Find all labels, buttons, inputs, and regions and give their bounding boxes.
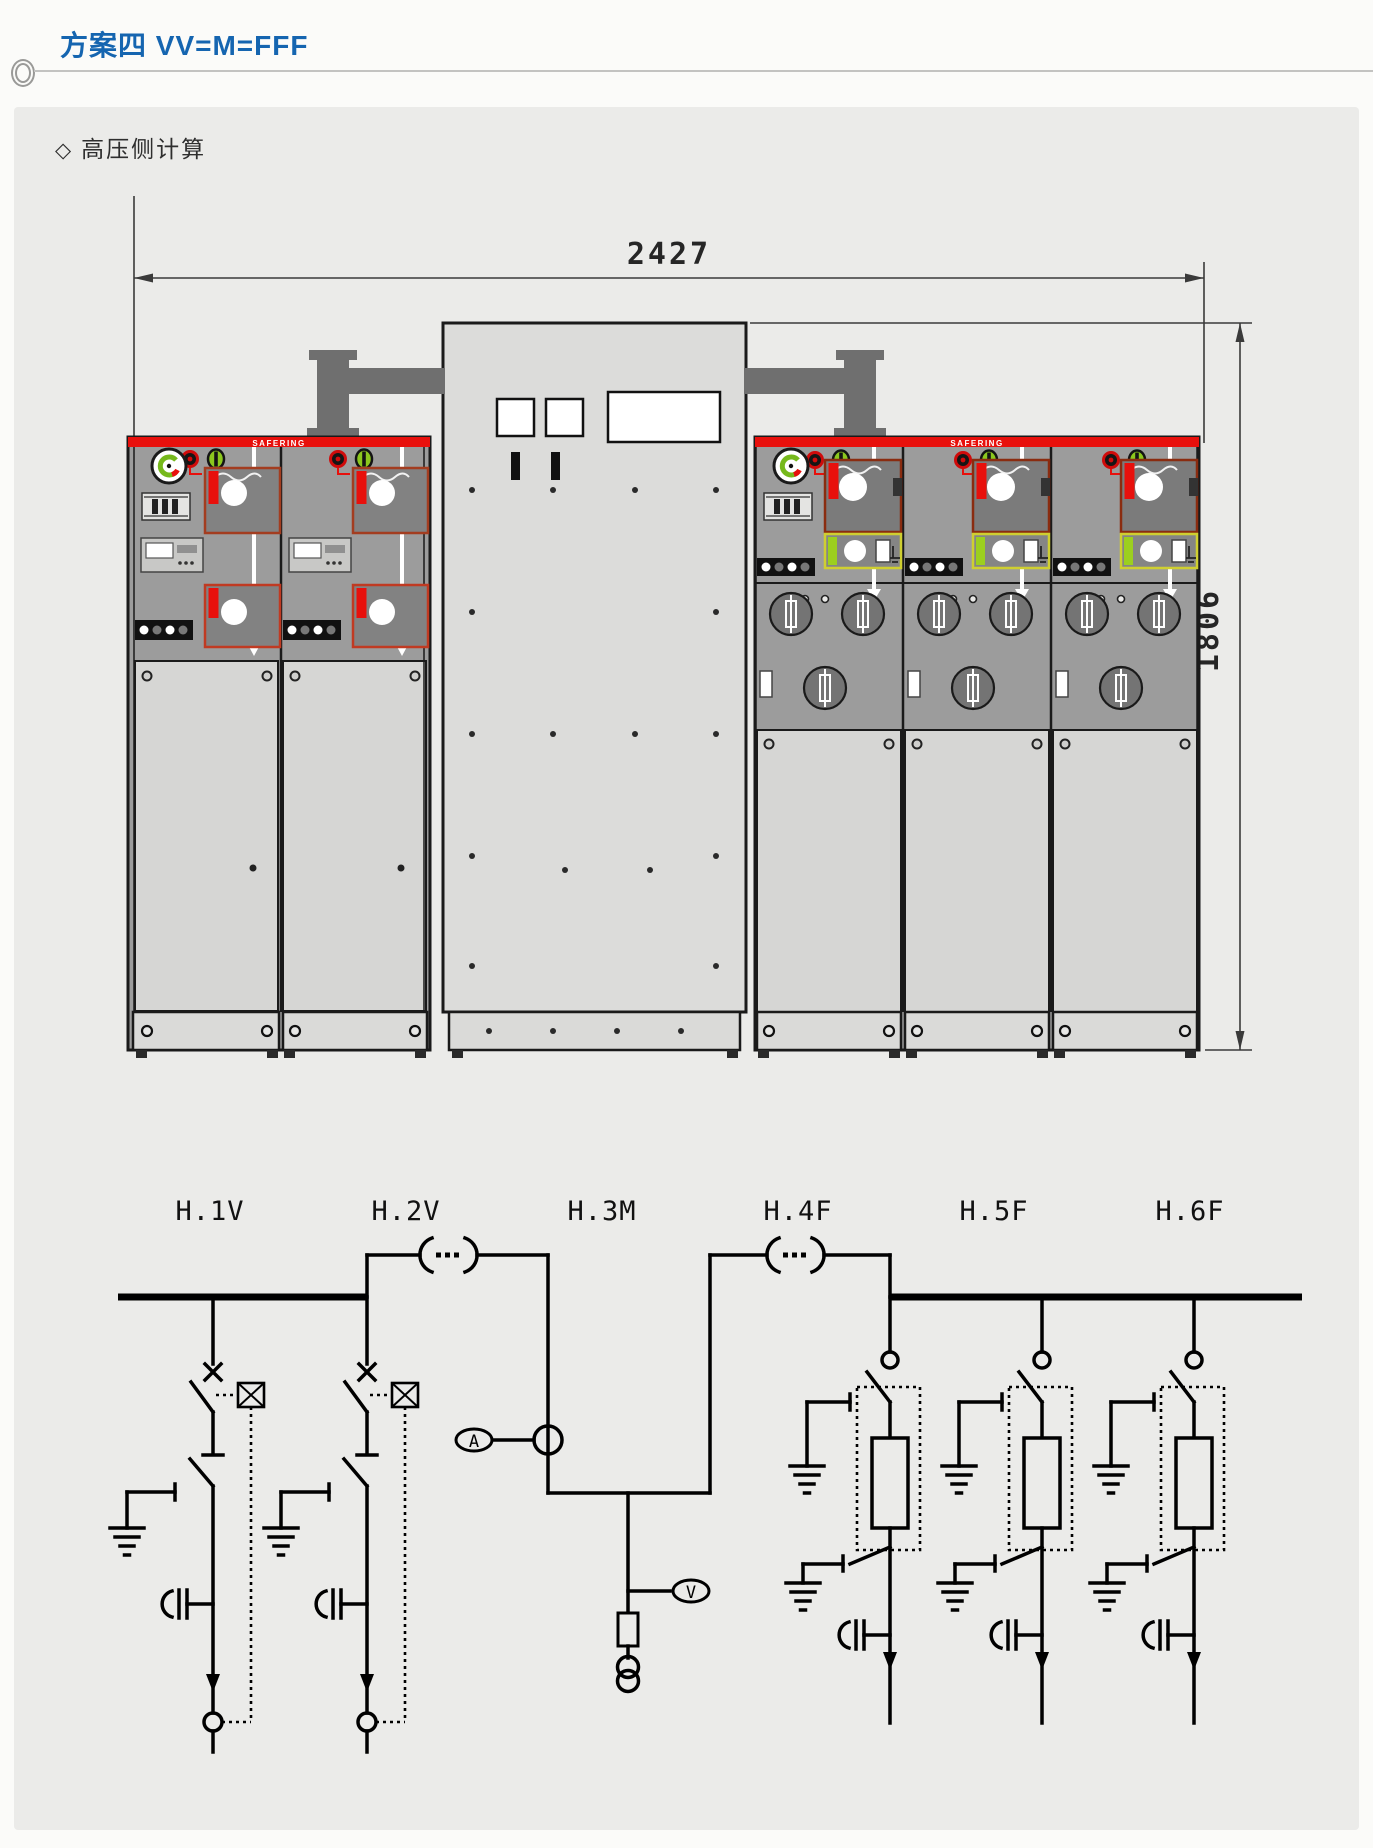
feeder-label-h3m: H.3M xyxy=(567,1196,636,1227)
feeder-label-h2v: H.2V xyxy=(371,1196,440,1227)
feeder-label-h4f: H.4F xyxy=(763,1196,832,1227)
feeder-circuit-h1v xyxy=(110,1297,264,1752)
single-line-diagram: H.1V H.2V H.3M H.4F H.5F H.6F A xyxy=(110,1196,1302,1752)
feeder-circuit-h2v xyxy=(264,1297,418,1752)
metering-cabinet xyxy=(443,323,746,1058)
vt-fuse-icon xyxy=(618,1613,638,1646)
brand-label-right: SAFERING xyxy=(950,439,1003,448)
document-page: 方案四 VV=M=FFF ◇高压侧计算 xyxy=(0,0,1373,1848)
technical-drawing: 2427 1806 xyxy=(0,0,1373,1848)
feeder-label-h6f: H.6F xyxy=(1155,1196,1224,1227)
busbar-duct-left xyxy=(307,350,445,438)
feeder-circuit-h6f xyxy=(1090,1297,1224,1723)
feeder-circuit-h5f xyxy=(938,1297,1072,1723)
busbar-duct-right xyxy=(744,350,886,438)
width-dimension-label: 2427 xyxy=(627,237,711,272)
feeder-label-h1v: H.1V xyxy=(175,1196,244,1227)
bus-coupler-left xyxy=(420,1238,477,1272)
brand-label-left: SAFERING xyxy=(252,439,305,448)
feeder-circuit-h4f xyxy=(786,1297,920,1723)
ammeter-label: A xyxy=(469,1432,479,1452)
feeder-label-h5f: H.5F xyxy=(959,1196,1028,1227)
cabinet-group-right: SAFERING xyxy=(755,437,1199,1058)
cabinet-group-left: SAFERING xyxy=(128,437,430,1058)
bus-coupler-right xyxy=(767,1238,824,1272)
voltmeter-label: V xyxy=(686,1583,696,1603)
